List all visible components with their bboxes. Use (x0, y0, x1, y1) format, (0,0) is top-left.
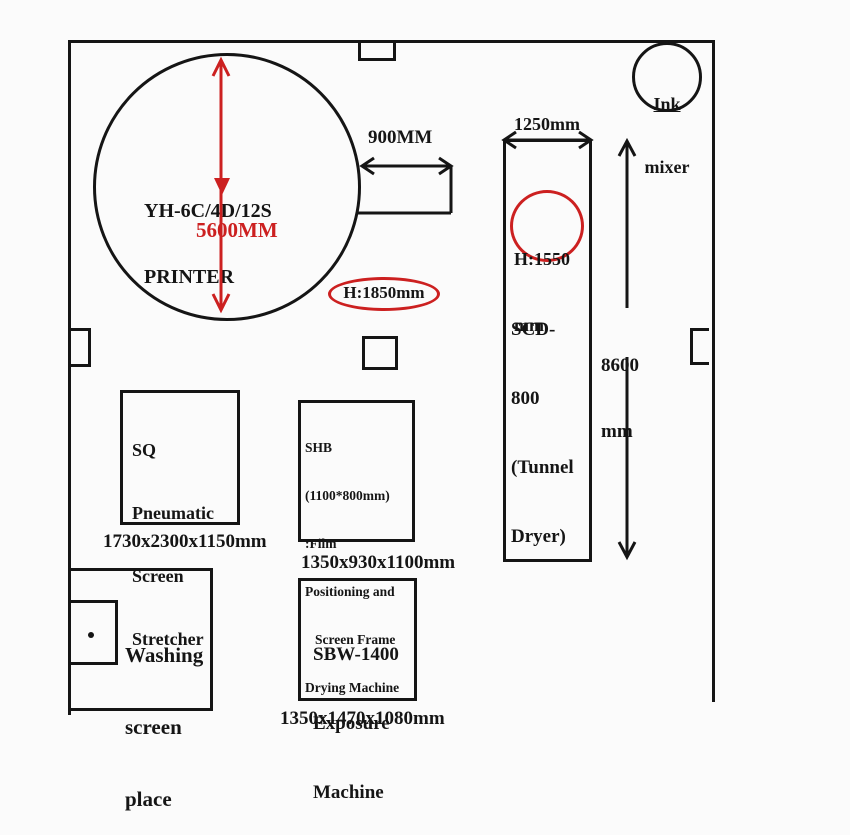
printer-diameter-arrow (213, 60, 230, 310)
dimension-arrows-layer (0, 0, 850, 820)
dryer-length-arrow (619, 141, 635, 557)
printer-side-dim-arrow (358, 158, 451, 213)
dryer-width-arrow (504, 132, 591, 148)
